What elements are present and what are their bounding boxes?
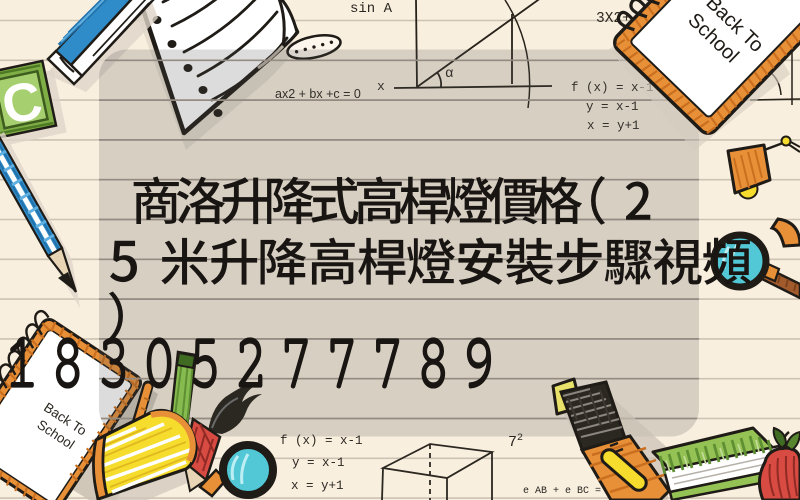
- svg-text:sin A: sin A: [350, 1, 393, 17]
- svg-text:x = y+1: x = y+1: [291, 479, 344, 493]
- svg-text:y = x-1: y = x-1: [292, 456, 345, 470]
- svg-text:f (x) = x-1: f (x) = x-1: [280, 434, 363, 448]
